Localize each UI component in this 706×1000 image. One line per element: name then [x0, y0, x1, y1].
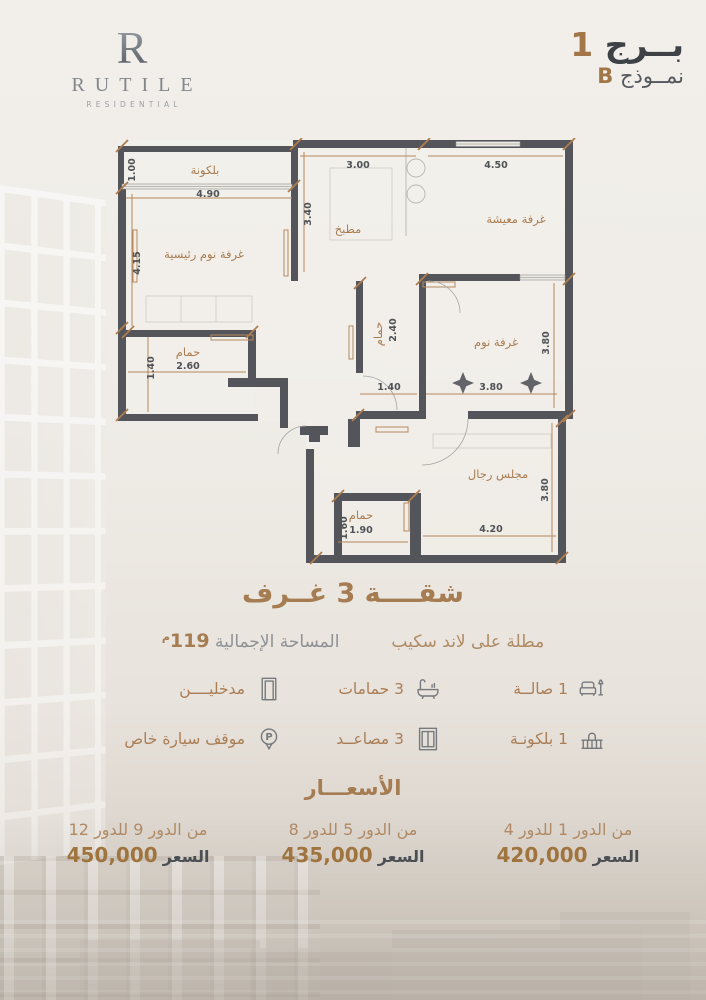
dim-bedroom-width: 3.80: [479, 382, 503, 393]
tier-floors: من الدور 1 للدور 4: [496, 820, 639, 839]
brand-logo: R RUTILE RESIDENTIAL: [48, 24, 216, 109]
model-letter: B: [597, 64, 613, 88]
feature-living: 1 صالــة: [457, 674, 607, 704]
dim-bath-mid-height: 2.40: [388, 318, 399, 342]
floor-plan: بلكونة غرفة نوم رئيسية مطبخ غرفة معيشة غ…: [108, 138, 578, 570]
tier-price-row: السعر 420,000: [496, 843, 639, 867]
parking-letter: P: [265, 732, 272, 743]
dim-bath-left-width: 2.60: [176, 361, 200, 372]
dim-bedroom-height: 3.80: [541, 331, 552, 355]
poster-page: R RUTILE RESIDENTIAL بــرج 1 نمــوذج B: [0, 0, 706, 1000]
bathtub-icon: [413, 674, 443, 704]
price-label: السعر: [593, 847, 640, 866]
tower-title: بــرج 1: [570, 26, 684, 64]
room-label-master-bedroom: غرفة نوم رئيسية: [164, 247, 244, 262]
brand-monogram: R: [48, 24, 216, 72]
room-label-bedroom: غرفة نوم: [474, 335, 518, 350]
price-tiers: من الدور 1 للدور 4 السعر 420,000 من الدو…: [0, 820, 706, 867]
price-tier-floors-9-12: من الدور 9 للدور 12 السعر 450,000: [67, 820, 210, 867]
area-text: المساحة الإجمالية 119م: [162, 630, 340, 652]
apartment-title: شقــــة 3 غــرف: [0, 578, 706, 609]
background-building-left: [0, 180, 105, 870]
dim-bath-bottom-width: 1.90: [349, 525, 373, 536]
view-text: مطلة على لاند سكيب: [391, 632, 544, 652]
area-label: المساحة الإجمالية: [215, 632, 339, 652]
apartment-meta: مطلة على لاند سكيب المساحة الإجمالية 119…: [0, 630, 706, 652]
dim-balcony-height: 1.00: [127, 158, 138, 182]
feature-label: مدخليــــن: [179, 680, 245, 698]
dim-bath-left-height: 1.40: [146, 356, 157, 380]
room-label-bath-left: حمام: [176, 345, 200, 359]
dim-kitchen-height: 3.40: [303, 202, 314, 226]
dim-bath-bottom-height: 1.60: [339, 516, 350, 540]
tier-floors: من الدور 9 للدور 12: [67, 820, 210, 839]
dim-majlis-width: 4.20: [479, 524, 503, 535]
prices-title: الأسعـــار: [0, 776, 706, 800]
sofa-icon: [577, 674, 607, 704]
dim-majlis-height: 3.80: [540, 478, 551, 502]
price-value: 435,000: [282, 843, 373, 867]
feature-elevators: 3 مصاعــد: [298, 724, 443, 754]
room-label-bath-bottom: حمام: [349, 508, 373, 522]
room-label-living: غرفة معيشة: [486, 212, 545, 227]
price-value: 450,000: [67, 843, 158, 867]
price-tier-floors-5-8: من الدور 5 للدور 8 السعر 435,000: [282, 820, 425, 867]
feature-label: موقف سيارة خاص: [124, 730, 245, 748]
brand-subtitle: RESIDENTIAL: [52, 100, 216, 109]
dim-living-width: 4.50: [484, 160, 508, 171]
tower-header: بــرج 1 نمــوذج B: [570, 26, 684, 89]
elevator-icon: [413, 724, 443, 754]
feature-label: 3 حمامات: [338, 680, 404, 698]
feature-label: 1 صالــة: [513, 680, 568, 698]
parking-icon: P: [254, 724, 284, 754]
floor-plan-svg: بلكونة غرفة نوم رئيسية مطبخ غرفة معيشة غ…: [108, 138, 578, 570]
dim-kitchen-width: 3.00: [346, 160, 370, 171]
room-label-balcony: بلكونة: [191, 163, 220, 178]
model-label: نمــوذج: [620, 64, 684, 88]
room-label-bath-mid: حمام: [371, 322, 385, 346]
model-title: نمــوذج B: [570, 64, 684, 89]
price-label: السعر: [378, 847, 425, 866]
price-value: 420,000: [496, 843, 587, 867]
feature-label: 1 بلكونـة: [510, 730, 568, 748]
room-label-kitchen: مطبخ: [335, 222, 362, 236]
feature-balcony: 1 بلكونـة: [457, 724, 607, 754]
area-unit: م: [162, 630, 170, 643]
balcony-icon: [577, 724, 607, 754]
tier-floors: من الدور 5 للدور 8: [282, 820, 425, 839]
price-label: السعر: [163, 847, 210, 866]
feature-label: 3 مصاعــد: [336, 730, 404, 748]
feature-parking: P موقف سيارة خاص: [99, 724, 284, 754]
feature-entrances: مدخليــــن: [99, 674, 284, 704]
dim-balcony-width: 4.90: [196, 189, 220, 200]
tower-number: 1: [570, 25, 593, 64]
tier-price-row: السعر 450,000: [67, 843, 210, 867]
room-label-majlis: مجلس رجال: [468, 467, 528, 482]
door-icon: [254, 674, 284, 704]
feature-bathrooms: 3 حمامات: [298, 674, 443, 704]
area-value: 119: [170, 630, 210, 652]
dim-master-height: 4.15: [132, 251, 143, 274]
brand-name: RUTILE: [58, 74, 216, 97]
tier-price-row: السعر 435,000: [282, 843, 425, 867]
dim-bath-mid-width: 1.40: [377, 382, 401, 393]
tower-label: بــرج: [605, 25, 684, 64]
features-grid: 1 صالــة 3 حمامات مدخليــــن 1 بلكونـة 3…: [0, 674, 706, 754]
price-tier-floors-1-4: من الدور 1 للدور 4 السعر 420,000: [496, 820, 639, 867]
